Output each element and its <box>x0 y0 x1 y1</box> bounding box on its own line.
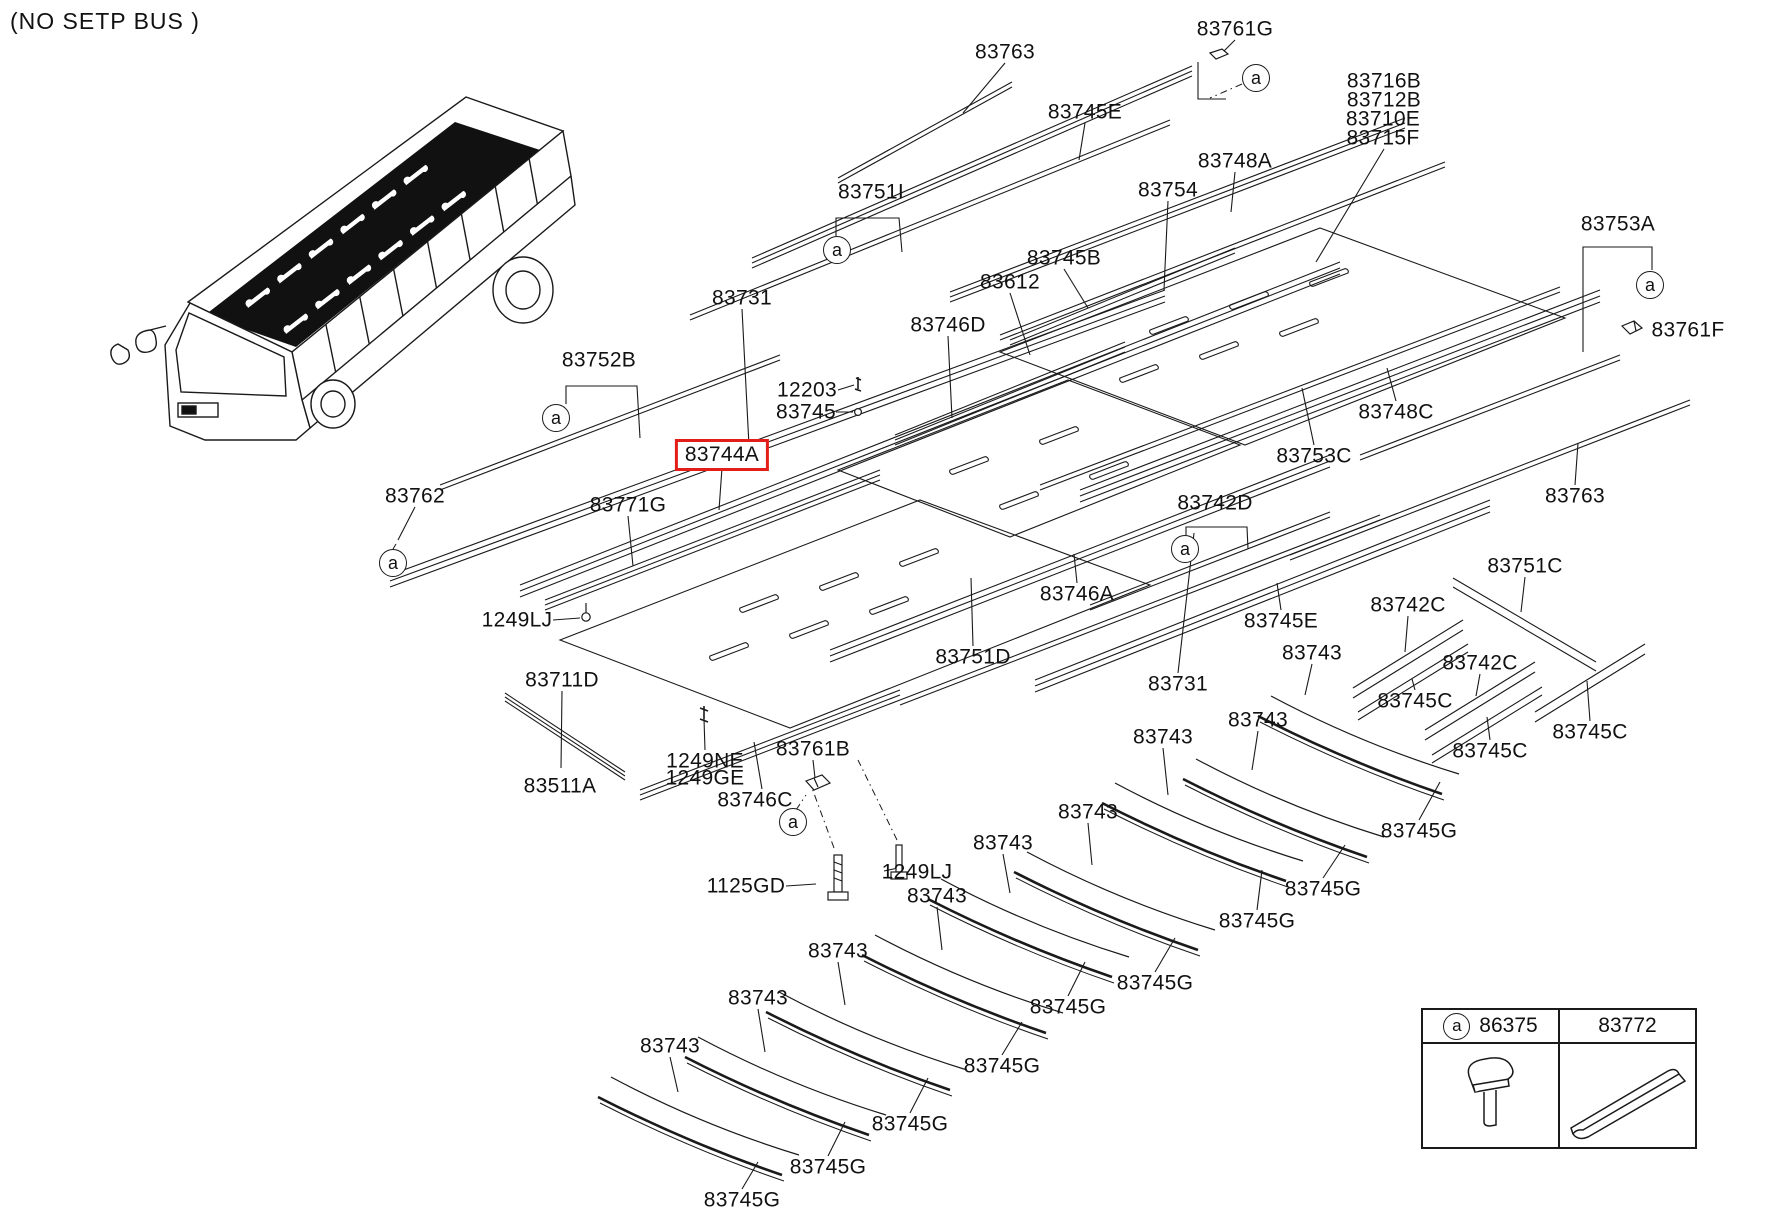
part-number-label[interactable]: 1249LJ <box>882 862 953 883</box>
clip-fastener-icon <box>1423 1044 1560 1149</box>
selected-part-label[interactable]: 83744A <box>675 439 769 471</box>
callout-a-marker: a <box>1242 64 1270 92</box>
callout-a-marker: a <box>542 404 570 432</box>
part-number-label[interactable]: 83761B <box>776 739 850 760</box>
legend-cell-86375[interactable]: a 86375 <box>1423 1010 1560 1042</box>
part-number-label[interactable]: 83745G <box>964 1056 1041 1077</box>
legend-part-number: 83772 <box>1598 1014 1656 1038</box>
callout-a-marker: a <box>779 808 807 836</box>
callout-a-marker: a <box>1171 535 1199 563</box>
part-number-label[interactable]: 83745B <box>1027 248 1101 269</box>
part-number-label[interactable]: 83745E <box>1048 102 1122 123</box>
part-number-label[interactable]: 83754 <box>1138 180 1198 201</box>
callout-a-marker: a <box>823 236 851 264</box>
part-number-label[interactable]: 83763 <box>975 42 1035 63</box>
callout-a-marker: a <box>1443 1013 1470 1040</box>
bus-illustration <box>111 97 575 440</box>
part-number-label[interactable]: 83745G <box>1219 911 1296 932</box>
roof-panel-outlines <box>560 228 1565 728</box>
part-number-label[interactable]: 83745G <box>872 1114 949 1135</box>
part-number-label[interactable]: 83771G <box>590 495 667 516</box>
callout-a-marker: a <box>379 549 407 577</box>
part-number-label[interactable]: 83745G <box>1285 879 1362 900</box>
part-number-label[interactable]: 83746A <box>1040 584 1114 605</box>
part-number-label[interactable]: 83743 <box>1058 802 1118 823</box>
part-number-label[interactable]: 83731 <box>712 288 772 309</box>
part-number-label[interactable]: 83742D <box>1177 493 1252 514</box>
callout-a-marker: a <box>1636 271 1664 299</box>
part-number-label[interactable]: 1125GD <box>707 876 785 897</box>
part-number-label[interactable]: 83745G <box>1117 973 1194 994</box>
part-number-label[interactable]: 83711D <box>525 670 599 691</box>
legend-cell-83772[interactable]: 83772 <box>1560 1010 1695 1042</box>
part-number-label[interactable]: 83745G <box>1030 997 1107 1018</box>
part-number-label[interactable]: 83745C <box>1377 691 1452 712</box>
legend-icon-row <box>1423 1044 1695 1149</box>
part-number-label[interactable]: 83762 <box>385 486 445 507</box>
part-number-label[interactable]: 83731 <box>1148 674 1208 695</box>
part-number-label[interactable]: 1249LJ <box>482 610 553 631</box>
part-number-label[interactable]: 83745C <box>1552 722 1627 743</box>
diagram-note: (NO SETP BUS ) <box>10 8 200 35</box>
part-number-label[interactable]: 83752B <box>562 350 636 371</box>
part-number-label[interactable]: 83743 <box>640 1036 700 1057</box>
part-number-label[interactable]: 83748C <box>1358 402 1433 423</box>
part-number-label[interactable]: 83748A <box>1198 151 1272 172</box>
part-number-label[interactable]: 83745G <box>790 1157 867 1178</box>
part-number-label[interactable]: 83745C <box>1452 741 1527 762</box>
part-number-label[interactable]: 83746C <box>717 790 792 811</box>
part-number-label[interactable]: 83743 <box>1133 727 1193 748</box>
part-number-label[interactable]: 83761F <box>1651 320 1724 341</box>
part-number-label[interactable]: 83511A <box>524 776 597 797</box>
part-number-label[interactable]: 83612 <box>980 272 1040 293</box>
parts-diagram-page: (NO SETP BUS ) 83761G8376383745E83716B83… <box>0 0 1772 1211</box>
moulding-strip-icon <box>1560 1044 1695 1149</box>
part-number-label[interactable]: 83742C <box>1370 595 1445 616</box>
part-number-label[interactable]: 83743 <box>973 833 1033 854</box>
part-number-label[interactable]: 83743 <box>907 886 967 907</box>
part-number-label[interactable]: 83753A <box>1581 214 1655 235</box>
part-number-label[interactable]: 83761G <box>1197 19 1274 40</box>
legend-table: a 86375 83772 <box>1421 1008 1697 1149</box>
part-number-label[interactable]: 83746D <box>910 315 985 336</box>
part-number-label[interactable]: 83745 <box>776 402 836 423</box>
part-number-label[interactable]: 1249GE <box>666 768 745 789</box>
part-number-label[interactable]: 83751I <box>838 182 904 203</box>
legend-part-number: 86375 <box>1479 1014 1537 1038</box>
part-number-label[interactable]: 83743 <box>808 941 868 962</box>
legend-header-row: a 86375 83772 <box>1423 1010 1695 1044</box>
part-number-label[interactable]: 83751D <box>935 647 1010 668</box>
part-number-label[interactable]: 12203 <box>777 380 837 401</box>
part-number-label[interactable]: 83715F <box>1346 128 1419 149</box>
part-number-label[interactable]: 83743 <box>728 988 788 1009</box>
part-number-label[interactable]: 83745G <box>704 1190 781 1211</box>
part-number-label[interactable]: 83751C <box>1487 556 1562 577</box>
part-number-label[interactable]: 83743 <box>1228 710 1288 731</box>
part-number-label[interactable]: 83763 <box>1545 486 1605 507</box>
part-number-label[interactable]: 83743 <box>1282 643 1342 664</box>
part-number-label[interactable]: 83745G <box>1381 821 1458 842</box>
part-number-label[interactable]: 83742C <box>1442 653 1517 674</box>
part-number-label[interactable]: 83753C <box>1276 446 1351 467</box>
part-number-label[interactable]: 83745E <box>1244 611 1318 632</box>
